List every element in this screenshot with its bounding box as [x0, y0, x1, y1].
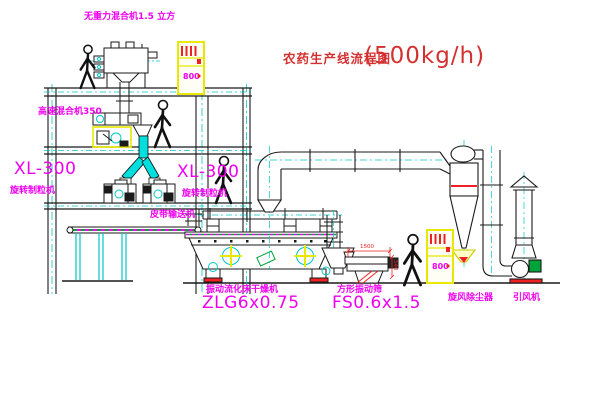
fan-drawing: [510, 260, 542, 283]
label-granulator-left-name: 旋转制粒机: [10, 187, 55, 196]
exhaust-downpipe: [480, 146, 512, 276]
label-fan: 引风机: [513, 294, 540, 303]
person-figure: [155, 101, 170, 148]
label-gravity-mixer: 无重力混合机1.5 立方: [84, 13, 175, 22]
granulator-right: [143, 180, 175, 203]
dimension-sieve-length: 1500: [360, 245, 374, 251]
label-dryer-model: ZLG6x0.75: [202, 295, 300, 312]
person-figure: [81, 45, 95, 88]
vibrating-sieve-drawing: [344, 247, 398, 283]
label-cyclone: 旋风除尘器: [448, 294, 493, 303]
label-granulator-right-name: 旋转制粒机: [182, 190, 227, 199]
label-high-speed-mixer: 高速混合机350: [38, 108, 102, 117]
gravity-free-mixer: [90, 42, 160, 113]
control-cabinet-2: 800: [427, 230, 453, 283]
process-flow-diagram: 800: [0, 0, 600, 403]
cyclone-drawing: [450, 140, 483, 268]
control-cabinet-1: 800: [178, 42, 204, 94]
label-sieve-model: FS0.6x1.5: [332, 295, 421, 312]
label-granulator-left-model: XL-300: [14, 161, 76, 178]
fluid-bed-dryer-drawing: [185, 208, 342, 282]
label-belt-conveyor: 皮带输送机: [150, 211, 195, 220]
belt-conveyor-drawing: [67, 227, 204, 280]
dimension-sieve-height: 540: [392, 260, 398, 271]
diagram-title-capacity: (500kg/h): [364, 45, 485, 68]
person-figure: [404, 235, 420, 285]
label-granulator-right-model: XL-300: [177, 164, 239, 181]
